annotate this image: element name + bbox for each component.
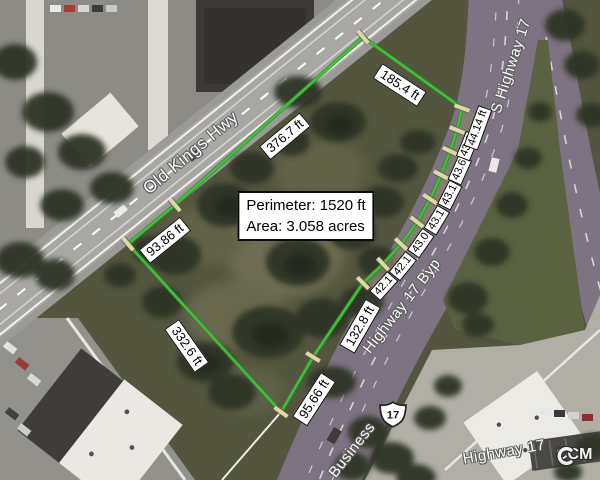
parcel-info-box: Perimeter: 1520 ft Area: 3.058 acres xyxy=(237,191,374,241)
aerial-parcel-map: Old Kings Hwy S Highway 17 Highway 17 By… xyxy=(0,0,600,480)
perimeter-text: Perimeter: 1520 ft xyxy=(246,195,365,216)
ccmls-crescent-icon xyxy=(556,446,576,466)
mls-watermark: CCM xyxy=(556,446,592,464)
route-shield-number: 17 xyxy=(387,409,400,421)
area-text: Area: 3.058 acres xyxy=(246,216,365,237)
